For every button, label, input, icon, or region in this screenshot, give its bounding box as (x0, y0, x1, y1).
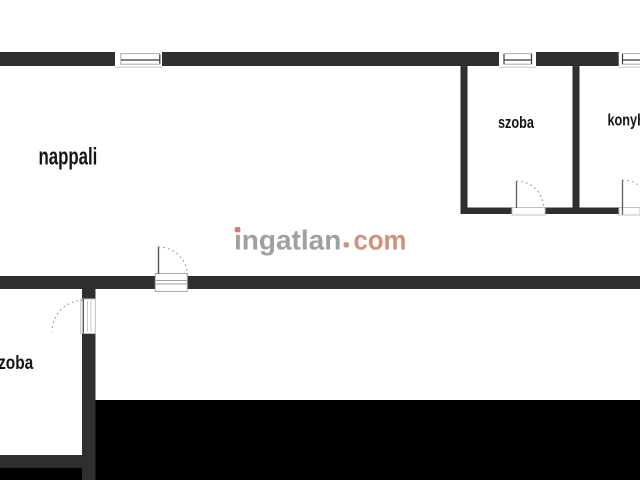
svg-text:ıngatlan: ıngatlan (234, 225, 341, 256)
svg-text:szoba: szoba (498, 114, 535, 132)
svg-text:konyha: konyha (608, 112, 640, 130)
svg-text:szoba: szoba (0, 351, 33, 373)
svg-text:com: com (354, 225, 407, 256)
svg-text:nappali: nappali (39, 144, 98, 171)
